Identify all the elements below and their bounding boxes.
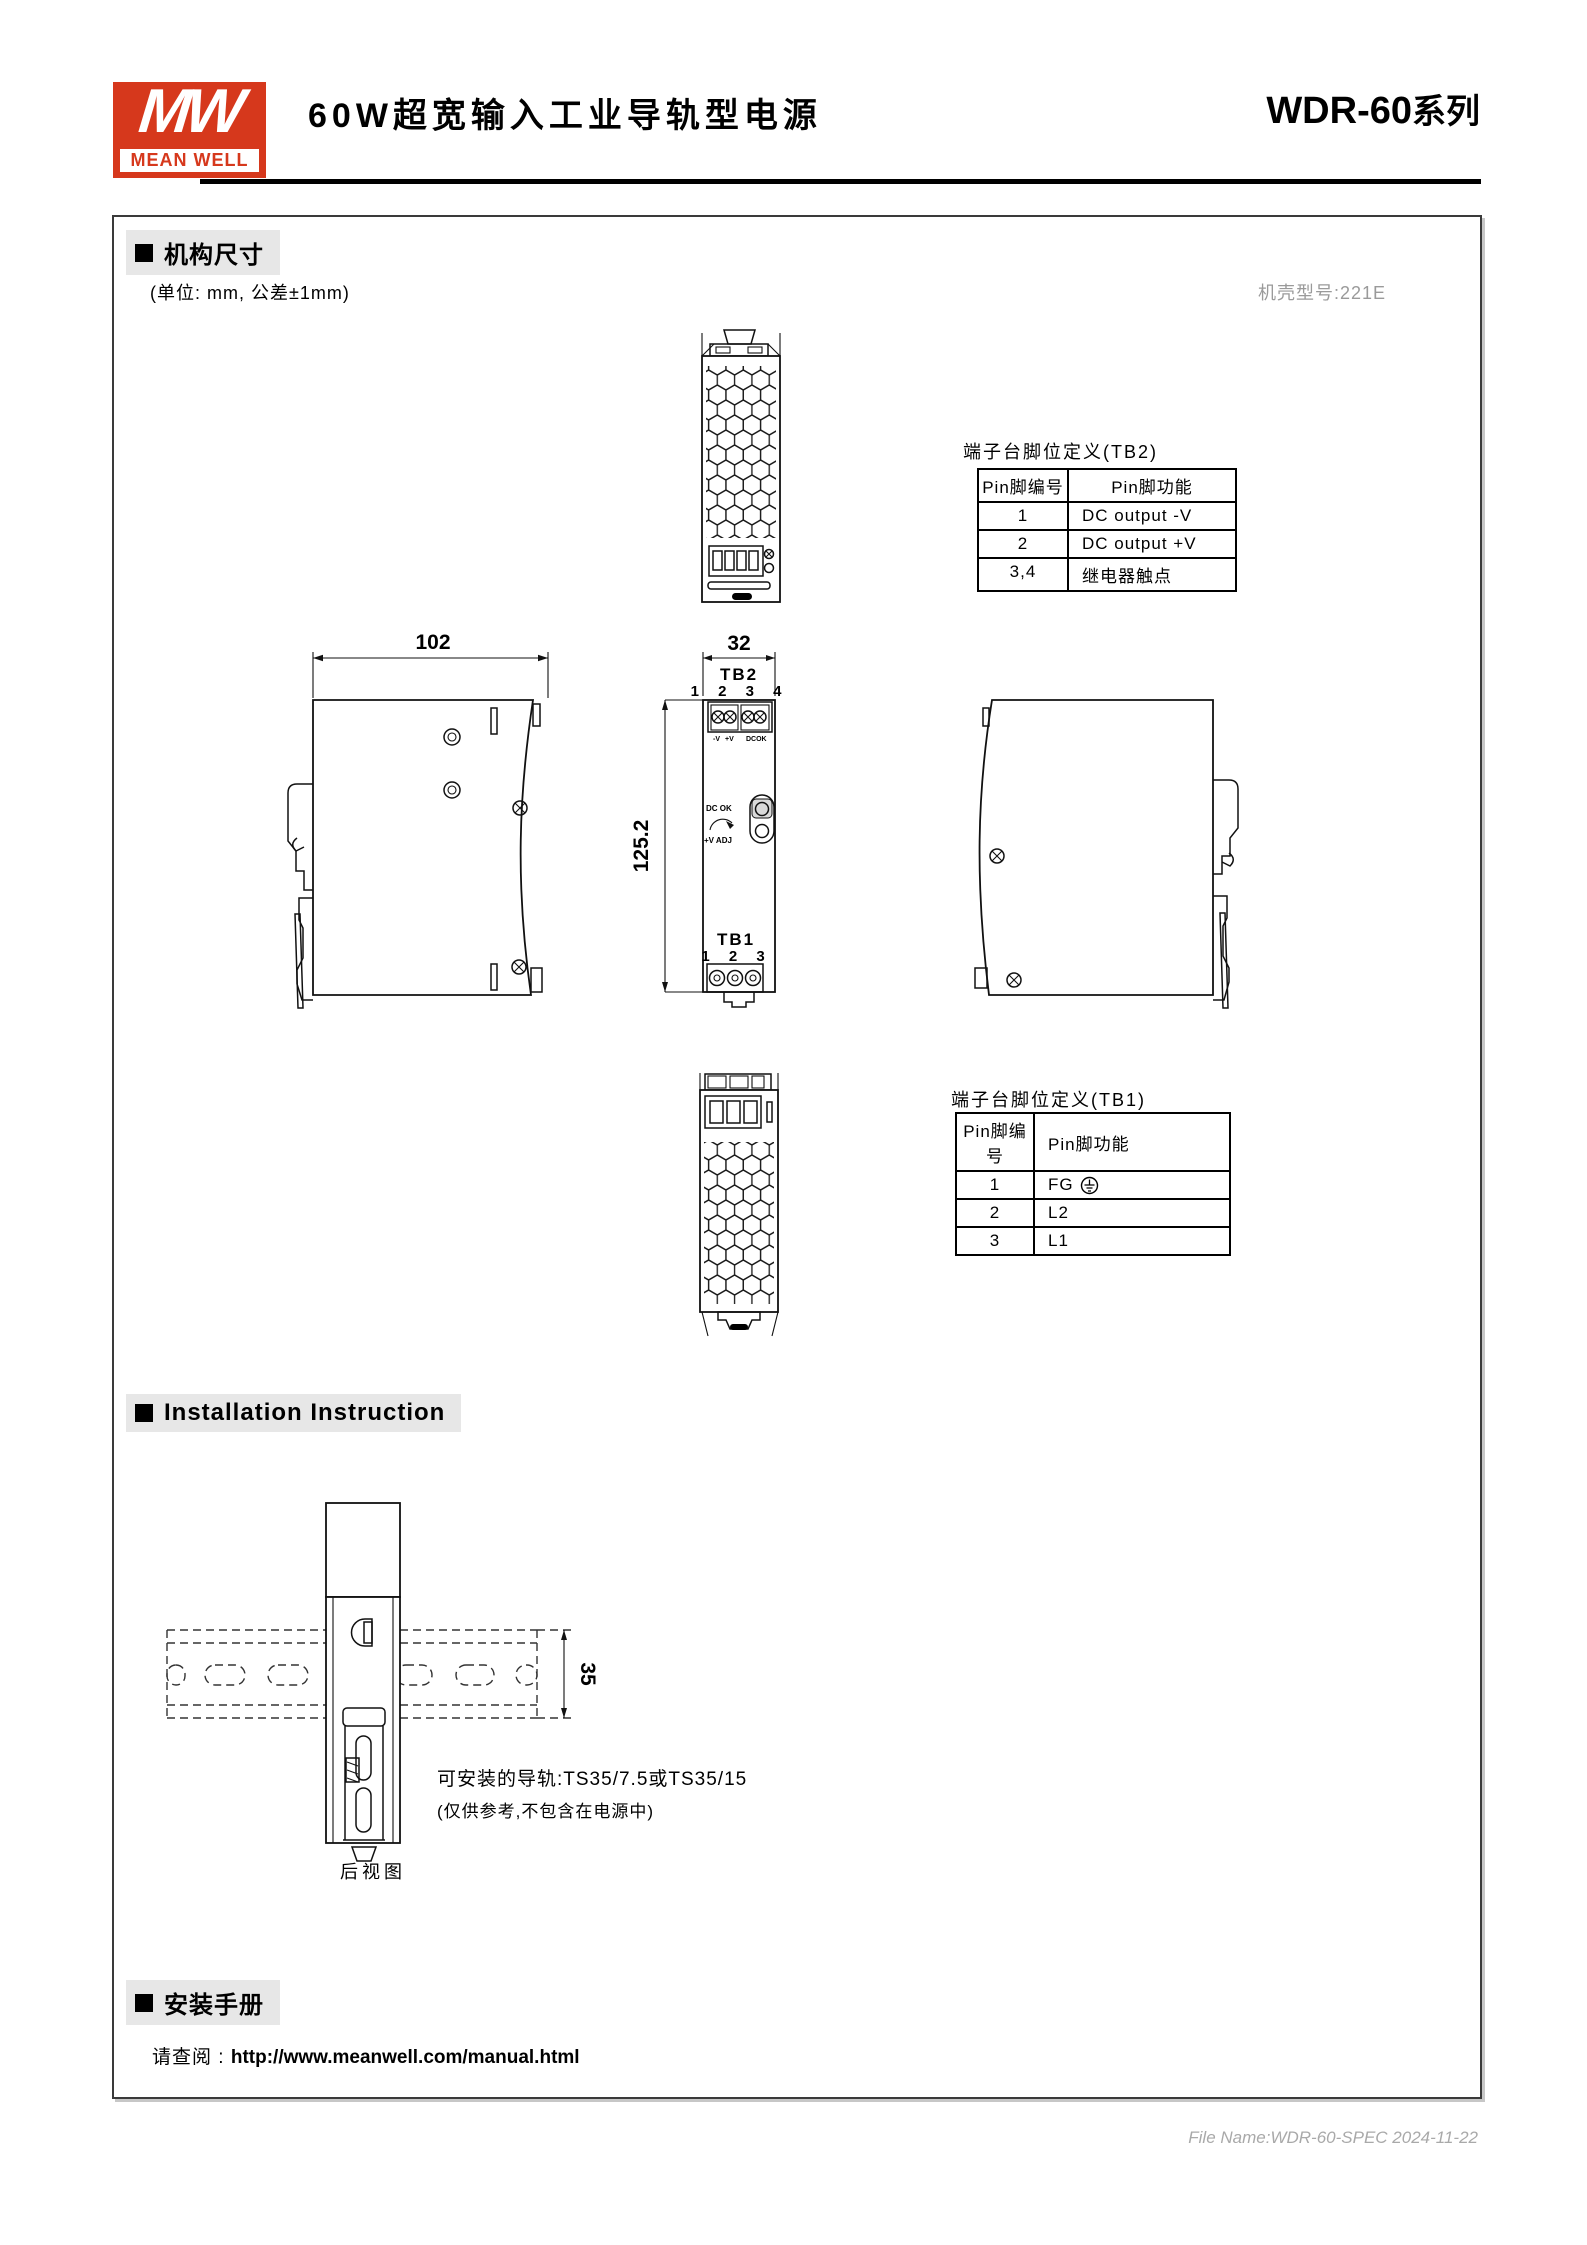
- tb2-row2-fn: DC output +V: [1069, 531, 1235, 557]
- series-title: WDR-60系列: [1060, 84, 1480, 133]
- section-installation: Installation Instruction: [126, 1394, 461, 1432]
- table-row: 2 L2: [957, 1198, 1229, 1226]
- tb1-row1-fn: FG: [1035, 1172, 1229, 1198]
- top-view-drawing: [648, 320, 788, 615]
- table-row: 3 L1: [957, 1226, 1229, 1254]
- section-bullet-icon: [135, 244, 153, 262]
- fg-label: FG: [1048, 1175, 1074, 1195]
- vent-honeycomb: [704, 1142, 774, 1304]
- right-side-view-drawing: [935, 628, 1245, 1018]
- logo-mw-letters: MW: [109, 76, 269, 147]
- file-name-footer: File Name:WDR-60-SPEC 2024-11-22: [1000, 2128, 1478, 2148]
- bottom-view-drawing: [648, 1060, 788, 1360]
- table-row: 2 DC output +V: [979, 529, 1235, 557]
- datasheet-page: MW MEAN WELL 60W超宽输入工业导轨型电源 WDR-60系列 机构尺…: [0, 0, 1587, 2245]
- vent-honeycomb: [706, 366, 776, 538]
- page-title: 60W超宽输入工业导轨型电源: [308, 88, 822, 137]
- rail-note-1: 可安装的导轨:TS35/7.5或TS35/15: [437, 1764, 747, 1791]
- installation-drawing: 35: [140, 1470, 660, 1900]
- tb2-row2-pin: 2: [979, 531, 1069, 557]
- tb1-row2-pin: 2: [957, 1200, 1035, 1226]
- tb2-table: Pin脚编号 Pin脚功能 1 DC output -V 2 DC output…: [977, 468, 1237, 592]
- table-header-row: Pin脚编号 Pin脚功能: [957, 1114, 1229, 1170]
- meanwell-logo: MW MEAN WELL: [113, 82, 266, 178]
- tb2-col2-header: Pin脚功能: [1069, 470, 1235, 501]
- rail-note-2: (仅供参考,不包含在电源中): [437, 1797, 654, 1822]
- section-manual: 安装手册: [126, 1980, 280, 2025]
- label-neg-v: -V: [713, 736, 720, 743]
- dim-102: 102: [415, 631, 450, 654]
- tb1-col1-header: Pin脚编号: [957, 1114, 1035, 1170]
- section-installation-title: Installation Instruction: [164, 1399, 445, 1427]
- table-row: 3,4 继电器触点: [979, 557, 1235, 590]
- table-header-row: Pin脚编号 Pin脚功能: [979, 470, 1235, 501]
- tb2-row3-pin: 3,4: [979, 559, 1069, 590]
- tb1-label: TB1: [717, 930, 755, 949]
- tb2-row1-fn: DC output -V: [1069, 503, 1235, 529]
- tb2-col1-header: Pin脚编号: [979, 470, 1069, 501]
- label-pos-v: +V: [725, 736, 734, 743]
- dim-125-2: 125.2: [630, 820, 653, 873]
- manual-prefix: 请查阅 :: [152, 2047, 225, 2068]
- logo-band: MEAN WELL: [120, 149, 259, 172]
- ground-icon: [1080, 1176, 1099, 1195]
- left-side-view-drawing: 102: [275, 628, 565, 1013]
- tb1-row2-fn: L2: [1035, 1200, 1229, 1226]
- series-model: WDR-60: [1266, 90, 1412, 132]
- tb1-row3-fn: L1: [1035, 1228, 1229, 1254]
- case-type-note: 机壳型号:221E: [1258, 279, 1386, 305]
- section-mechanical: 机构尺寸: [126, 230, 280, 275]
- logo-brand-text: MEAN WELL: [131, 150, 249, 171]
- section-mechanical-title: 机构尺寸: [164, 235, 264, 270]
- unit-note: (单位: mm, 公差±1mm): [150, 279, 350, 305]
- tb1-table: Pin脚编号 Pin脚功能 1 FG 2 L2 3 L1: [955, 1112, 1231, 1256]
- tb1-row3-pin: 3: [957, 1228, 1035, 1254]
- tb1-pin-numbers: 1 2 3: [701, 948, 768, 965]
- section-manual-title: 安装手册: [164, 1985, 264, 2020]
- tb2-row3-fn: 继电器触点: [1069, 559, 1235, 590]
- tb1-table-title: 端子台脚位定义(TB1): [951, 1086, 1146, 1112]
- tb1-col2-header: Pin脚功能: [1035, 1114, 1229, 1170]
- dc-ok-label: DC OK: [706, 804, 732, 813]
- series-suffix: 系列: [1412, 93, 1480, 131]
- tb1-row1-pin: 1: [957, 1172, 1035, 1198]
- manual-url-link[interactable]: http://www.meanwell.com/manual.html: [231, 2047, 580, 2068]
- section-bullet-icon: [135, 1994, 153, 2012]
- v-adj-label: +V ADJ: [704, 836, 732, 845]
- tb2-pin-numbers: 1 2 3 4: [691, 683, 786, 700]
- front-view-drawing: 32 125.2 TB2 1 2 3 4 -V +V DCOK DC OK +V…: [620, 628, 800, 1018]
- section-bullet-icon: [135, 1404, 153, 1422]
- manual-line: 请查阅 : http://www.meanwell.com/manual.htm…: [152, 2042, 580, 2069]
- table-row: 1 DC output -V: [979, 501, 1235, 529]
- header-rule: [200, 179, 1481, 184]
- tb2-row1-pin: 1: [979, 503, 1069, 529]
- dim-32: 32: [727, 632, 750, 655]
- rear-view-label: 后视图: [340, 1858, 406, 1884]
- tb2-table-title: 端子台脚位定义(TB2): [963, 438, 1158, 464]
- table-row: 1 FG: [957, 1170, 1229, 1198]
- label-dcok: DCOK: [746, 736, 767, 743]
- dim-35: 35: [576, 1662, 599, 1686]
- tb2-label: TB2: [720, 665, 758, 684]
